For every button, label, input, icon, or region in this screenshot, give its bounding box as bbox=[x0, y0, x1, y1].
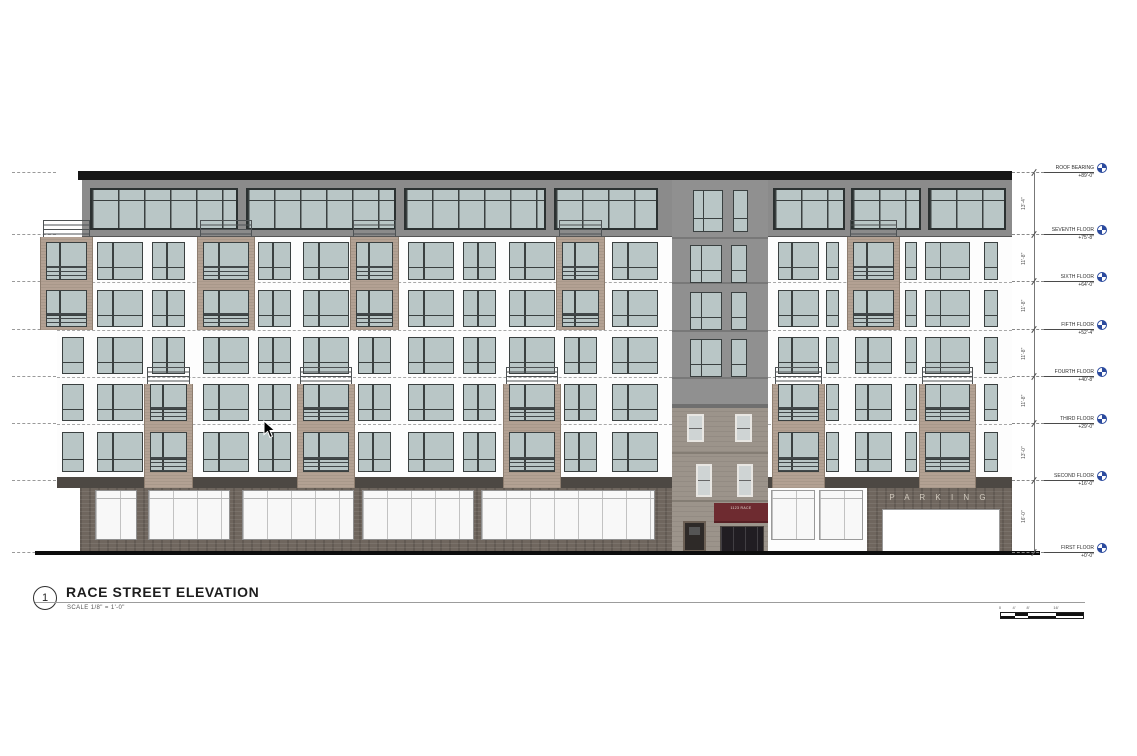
window-transom bbox=[613, 409, 657, 410]
window-transom bbox=[985, 362, 997, 363]
level-elevation: +29'-0" bbox=[1044, 424, 1094, 430]
window bbox=[408, 337, 454, 374]
window bbox=[463, 290, 496, 327]
tower-slab-line bbox=[672, 237, 768, 239]
parking-opening bbox=[882, 509, 1000, 552]
window bbox=[358, 337, 391, 374]
tower-slab-line bbox=[672, 330, 768, 332]
level-stub-left bbox=[12, 480, 56, 481]
window bbox=[303, 242, 349, 280]
storefront-window bbox=[148, 490, 230, 540]
window bbox=[853, 242, 894, 280]
window-mullion bbox=[112, 385, 114, 420]
window-mullion bbox=[701, 340, 703, 376]
scale-note: SCALE 1/8" = 1'-0" bbox=[67, 605, 125, 611]
window-mullion bbox=[112, 338, 114, 373]
window bbox=[826, 242, 839, 280]
window-mullion bbox=[627, 385, 629, 420]
balcony-guardrail bbox=[357, 313, 392, 326]
scale-bar-segment bbox=[1015, 613, 1029, 618]
window-mullion bbox=[112, 291, 114, 326]
window bbox=[612, 337, 658, 374]
storefront-transom bbox=[482, 498, 654, 499]
window bbox=[925, 242, 970, 280]
window-transom bbox=[510, 267, 554, 268]
window-transom bbox=[732, 270, 746, 271]
window-transom bbox=[926, 267, 969, 268]
level-label: SIXTH FLOOR+64'-0" bbox=[1044, 274, 1094, 288]
door-pane bbox=[689, 527, 700, 535]
level-name: THIRD FLOOR bbox=[1044, 416, 1094, 424]
window-mullion bbox=[112, 243, 114, 279]
scale-bar-label: 4' bbox=[1008, 605, 1020, 610]
storefront-window bbox=[819, 490, 863, 540]
stack-railing bbox=[850, 220, 897, 237]
window-transom bbox=[613, 315, 657, 316]
window-transom bbox=[732, 317, 746, 318]
window-mullion bbox=[423, 338, 425, 373]
window bbox=[564, 337, 597, 374]
window bbox=[97, 432, 143, 472]
window-mullion bbox=[477, 291, 479, 326]
balcony-guardrail bbox=[151, 407, 186, 420]
window bbox=[984, 242, 998, 280]
window bbox=[905, 290, 917, 327]
storefront-transom bbox=[820, 498, 862, 499]
curtain-transom bbox=[556, 200, 656, 201]
window-mullion bbox=[578, 385, 580, 420]
window-transom bbox=[409, 409, 453, 410]
window-transom bbox=[464, 267, 495, 268]
glass-curtain bbox=[773, 188, 845, 230]
window-mullion bbox=[627, 243, 629, 279]
elevation-sheet: ROOF BEARING+89'-0"SEVENTH FLOOR+75'-8"S… bbox=[0, 0, 1137, 756]
level-name: SEVENTH FLOOR bbox=[1044, 227, 1094, 235]
window bbox=[203, 242, 249, 280]
window-mullion bbox=[272, 243, 274, 279]
level-label: ROOF BEARING+89'-0" bbox=[1044, 165, 1094, 179]
balcony-guardrail bbox=[854, 313, 893, 326]
level-elevation: +40'-8" bbox=[1044, 377, 1094, 383]
window bbox=[612, 290, 658, 327]
window-transom bbox=[259, 362, 290, 363]
window-mullion bbox=[867, 338, 869, 373]
window-mullion bbox=[940, 291, 942, 326]
window-transom bbox=[98, 267, 142, 268]
window-mullion bbox=[272, 385, 274, 420]
window bbox=[258, 337, 291, 374]
balcony-guardrail bbox=[779, 457, 818, 471]
window-transom bbox=[827, 409, 838, 410]
window-transom bbox=[63, 409, 83, 410]
window-transom bbox=[926, 315, 969, 316]
storefront-transom bbox=[243, 498, 353, 499]
window bbox=[731, 292, 747, 330]
window-transom bbox=[304, 315, 348, 316]
window bbox=[853, 290, 894, 327]
window bbox=[46, 290, 87, 327]
dim-label: 11'-8" bbox=[1018, 377, 1030, 424]
level-label: THIRD FLOOR+29'-0" bbox=[1044, 416, 1094, 430]
window bbox=[925, 432, 970, 472]
window-transom bbox=[510, 315, 554, 316]
window-mullion bbox=[477, 243, 479, 279]
window bbox=[203, 290, 249, 327]
window-mullion bbox=[372, 338, 374, 373]
window-transom bbox=[613, 267, 657, 268]
window bbox=[46, 242, 87, 280]
window-transom bbox=[856, 409, 891, 410]
stack-railing bbox=[353, 220, 396, 237]
curtain-transom bbox=[92, 200, 236, 201]
scale-bar-segment bbox=[1056, 613, 1083, 618]
stack-railing bbox=[559, 220, 602, 237]
window-transom bbox=[906, 459, 916, 460]
stack-railing bbox=[922, 367, 973, 384]
window-mullion bbox=[477, 385, 479, 420]
window-transom bbox=[985, 459, 997, 460]
window-transom bbox=[259, 315, 290, 316]
window-transom bbox=[409, 362, 453, 363]
balcony-guardrail bbox=[47, 313, 86, 326]
entry-door bbox=[683, 521, 706, 552]
window-mullion bbox=[477, 338, 479, 373]
window-transom bbox=[464, 459, 495, 460]
curtain-transom bbox=[248, 200, 394, 201]
level-name: FOURTH FLOOR bbox=[1044, 369, 1094, 377]
window-transom bbox=[732, 364, 746, 365]
window-transom bbox=[98, 459, 142, 460]
window-transom bbox=[359, 362, 390, 363]
scale-bar-segment bbox=[1001, 613, 1015, 618]
window-transom bbox=[906, 267, 916, 268]
window-transom bbox=[153, 267, 184, 268]
window-transom bbox=[63, 362, 83, 363]
level-elevation: +64'-0" bbox=[1044, 282, 1094, 288]
window-transom bbox=[827, 362, 838, 363]
window bbox=[408, 432, 454, 472]
window bbox=[152, 290, 185, 327]
level-elevation: +75'-8" bbox=[1044, 235, 1094, 241]
window-mullion bbox=[423, 243, 425, 279]
window-mullion bbox=[423, 385, 425, 420]
window-mullion bbox=[272, 338, 274, 373]
window bbox=[826, 337, 839, 374]
window-transom bbox=[304, 362, 348, 363]
window-transom bbox=[926, 362, 969, 363]
storefront-transom bbox=[96, 498, 136, 499]
window bbox=[778, 242, 819, 280]
dim-label: 11'-8" bbox=[1018, 330, 1030, 377]
glass-curtain bbox=[404, 188, 546, 230]
window-transom bbox=[856, 362, 891, 363]
glass-curtain bbox=[928, 188, 1006, 230]
window bbox=[303, 384, 349, 421]
window bbox=[358, 432, 391, 472]
stack-railing bbox=[775, 367, 822, 384]
window bbox=[855, 384, 892, 421]
window bbox=[62, 432, 84, 472]
window-mullion bbox=[578, 338, 580, 373]
window bbox=[826, 290, 839, 327]
window bbox=[97, 290, 143, 327]
floor-line bbox=[57, 330, 672, 331]
window bbox=[733, 190, 748, 232]
window-mullion bbox=[318, 291, 320, 326]
window-transom bbox=[409, 459, 453, 460]
window-transom bbox=[691, 270, 721, 271]
window bbox=[612, 384, 658, 421]
storefront-transom bbox=[363, 498, 473, 499]
dim-label: 13'-4" bbox=[1018, 173, 1030, 235]
window-transom bbox=[906, 362, 916, 363]
window-mullion bbox=[423, 291, 425, 326]
window-mullion bbox=[578, 433, 580, 471]
window bbox=[826, 432, 839, 472]
window bbox=[778, 432, 819, 472]
drawing-title: RACE STREET ELEVATION bbox=[66, 584, 259, 600]
balcony-guardrail bbox=[563, 266, 598, 279]
window bbox=[564, 384, 597, 421]
curtain-transom bbox=[853, 200, 919, 201]
window-transom bbox=[98, 315, 142, 316]
window-transom bbox=[827, 267, 838, 268]
window-transom bbox=[409, 315, 453, 316]
level-elevation: +0'-0" bbox=[1044, 553, 1094, 559]
window-mullion bbox=[218, 338, 220, 373]
existing-window bbox=[696, 464, 712, 497]
level-name: FIRST FLOOR bbox=[1044, 545, 1094, 553]
level-name: SIXTH FLOOR bbox=[1044, 274, 1094, 282]
window bbox=[509, 432, 555, 472]
balcony-guardrail bbox=[926, 407, 969, 420]
ground-line bbox=[35, 551, 1040, 555]
storefront-window bbox=[481, 490, 655, 540]
scale-bar-label: 0 bbox=[994, 605, 1006, 610]
window-transom bbox=[734, 218, 747, 219]
window-transom bbox=[204, 362, 248, 363]
drawing-number-bubble: 1 bbox=[33, 586, 57, 610]
window-mullion bbox=[791, 243, 793, 279]
stack-railing bbox=[43, 220, 90, 237]
window-mullion bbox=[701, 246, 703, 282]
stack-railing bbox=[200, 220, 252, 237]
window-mullion bbox=[627, 338, 629, 373]
stack-railing bbox=[506, 367, 558, 384]
window bbox=[562, 242, 599, 280]
balcony-guardrail bbox=[204, 313, 248, 326]
window-transom bbox=[906, 315, 916, 316]
balcony-guardrail bbox=[304, 407, 348, 420]
datum-icon bbox=[1097, 272, 1107, 282]
stack-railing bbox=[147, 367, 190, 384]
window-mullion bbox=[166, 243, 168, 279]
dim-label: 11'-8" bbox=[1018, 235, 1030, 282]
window-transom bbox=[827, 459, 838, 460]
window bbox=[358, 384, 391, 421]
window bbox=[150, 384, 187, 421]
window-transom bbox=[565, 459, 596, 460]
level-stub-left bbox=[12, 172, 56, 173]
window-mullion bbox=[166, 291, 168, 326]
window-mullion bbox=[218, 385, 220, 420]
level-label: FOURTH FLOOR+40'-8" bbox=[1044, 369, 1094, 383]
window bbox=[303, 290, 349, 327]
window bbox=[905, 242, 917, 280]
mouse-pointer-icon bbox=[263, 420, 276, 444]
window bbox=[509, 242, 555, 280]
window-transom bbox=[259, 459, 290, 460]
window-transom bbox=[613, 362, 657, 363]
dim-label: 11'-8" bbox=[1018, 282, 1030, 330]
balcony-guardrail bbox=[47, 266, 86, 279]
window-transom bbox=[510, 362, 554, 363]
window bbox=[731, 245, 747, 283]
window-transom bbox=[694, 218, 722, 219]
window-mullion bbox=[372, 385, 374, 420]
window bbox=[408, 290, 454, 327]
level-elevation: +52'-4" bbox=[1044, 330, 1094, 336]
window-transom bbox=[259, 409, 290, 410]
window bbox=[731, 339, 747, 377]
window bbox=[612, 242, 658, 280]
window bbox=[564, 432, 597, 472]
balcony-guardrail bbox=[357, 266, 392, 279]
window-transom bbox=[779, 362, 818, 363]
window-transom bbox=[464, 315, 495, 316]
existing-sash bbox=[698, 480, 710, 481]
storefront-window bbox=[362, 490, 474, 540]
window-mullion bbox=[791, 291, 793, 326]
datum-icon bbox=[1097, 471, 1107, 481]
level-label: FIFTH FLOOR+52'-4" bbox=[1044, 322, 1094, 336]
window-transom bbox=[259, 267, 290, 268]
balcony-guardrail bbox=[204, 266, 248, 279]
window-transom bbox=[613, 459, 657, 460]
window-transom bbox=[464, 362, 495, 363]
window-mullion bbox=[423, 433, 425, 471]
window bbox=[690, 339, 722, 377]
window bbox=[408, 384, 454, 421]
balcony-guardrail bbox=[563, 313, 598, 326]
level-stub-left bbox=[12, 376, 56, 377]
window-mullion bbox=[627, 433, 629, 471]
window bbox=[984, 432, 998, 472]
balcony-guardrail bbox=[510, 407, 554, 420]
window-mullion bbox=[867, 385, 869, 420]
window-transom bbox=[204, 459, 248, 460]
window-mullion bbox=[112, 433, 114, 471]
existing-sash bbox=[737, 428, 750, 429]
window-transom bbox=[827, 315, 838, 316]
window bbox=[612, 432, 658, 472]
existing-cornice bbox=[672, 500, 768, 502]
window bbox=[905, 384, 917, 421]
window-transom bbox=[906, 409, 916, 410]
balcony-guardrail bbox=[304, 457, 348, 471]
scale-bar-label: 8' bbox=[1022, 605, 1034, 610]
window bbox=[408, 242, 454, 280]
window-transom bbox=[204, 409, 248, 410]
window-transom bbox=[985, 409, 997, 410]
window-transom bbox=[565, 362, 596, 363]
window bbox=[984, 337, 998, 374]
storefront-window bbox=[95, 490, 137, 540]
window-transom bbox=[985, 267, 997, 268]
window bbox=[97, 337, 143, 374]
window bbox=[463, 242, 496, 280]
window bbox=[925, 290, 970, 327]
window bbox=[778, 290, 819, 327]
curtain-transom bbox=[406, 200, 544, 201]
window bbox=[905, 337, 917, 374]
window-transom bbox=[98, 409, 142, 410]
window-transom bbox=[153, 315, 184, 316]
window bbox=[62, 384, 84, 421]
window bbox=[925, 384, 970, 421]
window bbox=[152, 242, 185, 280]
window bbox=[463, 337, 496, 374]
window-transom bbox=[565, 409, 596, 410]
window bbox=[463, 384, 496, 421]
window bbox=[509, 290, 555, 327]
level-label: SEVENTH FLOOR+75'-8" bbox=[1044, 227, 1094, 241]
window-transom bbox=[153, 362, 184, 363]
window-transom bbox=[691, 364, 721, 365]
level-name: FIFTH FLOOR bbox=[1044, 322, 1094, 330]
tower-slab-line bbox=[672, 377, 768, 379]
window-transom bbox=[63, 459, 83, 460]
window bbox=[97, 384, 143, 421]
datum-icon bbox=[1097, 320, 1107, 330]
storefront-transom bbox=[772, 498, 814, 499]
balcony-guardrail bbox=[779, 407, 818, 420]
level-name: ROOF BEARING bbox=[1044, 165, 1094, 173]
window bbox=[826, 384, 839, 421]
window-mullion bbox=[627, 291, 629, 326]
window bbox=[258, 384, 291, 421]
datum-icon bbox=[1097, 367, 1107, 377]
level-elevation: +89'-0" bbox=[1044, 173, 1094, 179]
existing-window bbox=[735, 414, 752, 442]
floor-line bbox=[768, 330, 1012, 331]
window bbox=[258, 242, 291, 280]
level-name: SECOND FLOOR bbox=[1044, 473, 1094, 481]
window-transom bbox=[779, 315, 818, 316]
scale-bar-segment bbox=[1028, 613, 1055, 618]
entry-storefront bbox=[720, 526, 764, 552]
storefront-window bbox=[242, 490, 354, 540]
window bbox=[356, 242, 393, 280]
window-mullion bbox=[477, 433, 479, 471]
existing-sash bbox=[739, 480, 751, 481]
window-transom bbox=[359, 459, 390, 460]
window-transom bbox=[779, 267, 818, 268]
window bbox=[258, 290, 291, 327]
dim-label: 16'-0" bbox=[1018, 481, 1030, 553]
window bbox=[984, 290, 998, 327]
window bbox=[778, 384, 819, 421]
balcony-guardrail bbox=[854, 266, 893, 279]
window bbox=[690, 292, 722, 330]
window-mullion bbox=[524, 243, 526, 279]
window-transom bbox=[985, 315, 997, 316]
window bbox=[509, 384, 555, 421]
window bbox=[905, 432, 917, 472]
window-mullion bbox=[701, 293, 703, 329]
balcony-guardrail bbox=[926, 457, 969, 471]
datum-icon bbox=[1097, 163, 1107, 173]
